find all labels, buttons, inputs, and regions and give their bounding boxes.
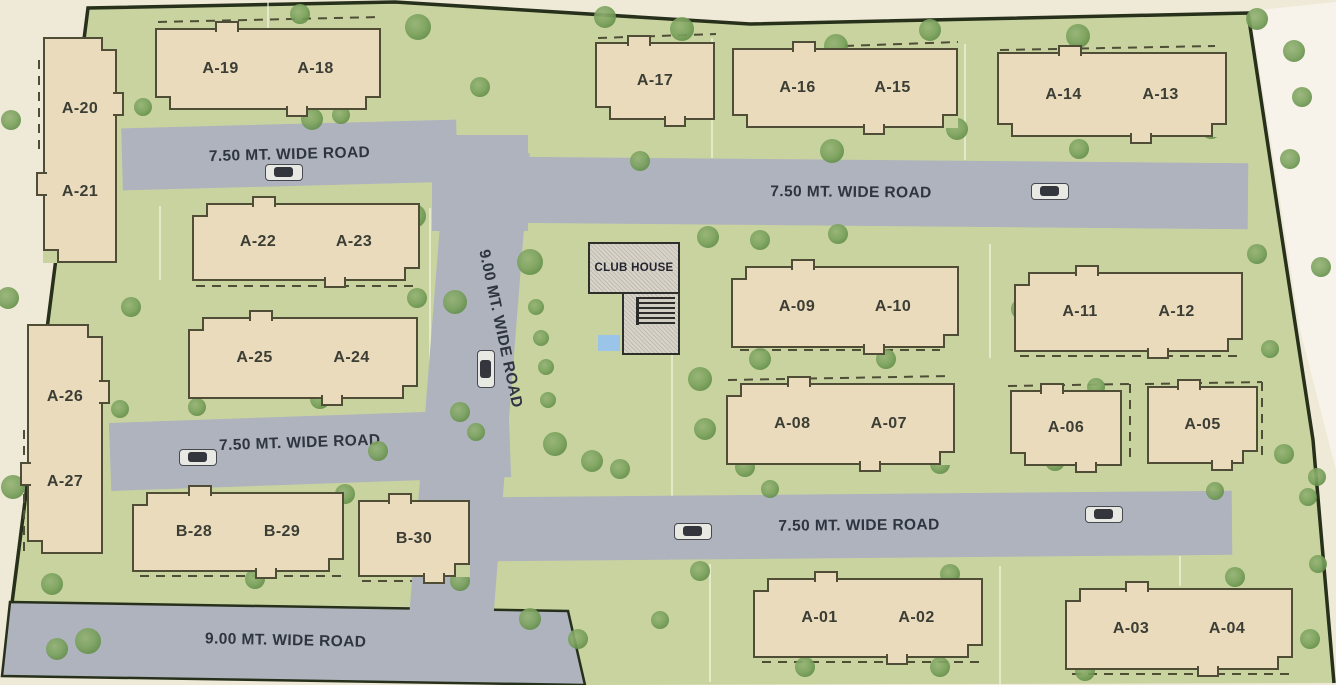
club-house-wing [622, 292, 680, 355]
building-a03-a04: A-03 A-04 [1065, 588, 1293, 670]
building-label: A-22 [240, 233, 276, 251]
building-a16-a15: A-16 A-15 [732, 48, 958, 128]
building-label: A-07 [871, 415, 907, 433]
building-label: A-13 [1142, 86, 1178, 104]
building-label: A-25 [236, 349, 272, 367]
building-a25-a24: A-25 A-24 [188, 317, 418, 399]
building-label: A-03 [1113, 620, 1149, 638]
pool-icon [598, 335, 620, 351]
car-icon [477, 350, 495, 388]
building-a01-a02: A-01 A-02 [753, 578, 983, 658]
building-label: A-20 [62, 100, 98, 118]
building-label: A-27 [47, 473, 83, 491]
building-a06: A-06 [1010, 390, 1122, 466]
car-icon [179, 449, 217, 466]
building-a14-a13: A-14 A-13 [997, 52, 1227, 137]
car-icon [674, 523, 712, 540]
building-label: B-29 [264, 523, 300, 541]
building-label: A-01 [801, 609, 837, 627]
building-a09-a10: A-09 A-10 [731, 266, 959, 348]
road-label: 7.50 MT. WIDE ROAD [778, 516, 940, 535]
car-icon [1031, 183, 1069, 200]
building-a20-a21: A-20 A-21 [43, 37, 117, 263]
road-label: 7.50 MT. WIDE ROAD [219, 432, 381, 456]
building-label: A-16 [779, 79, 815, 97]
building-label: A-14 [1045, 86, 1081, 104]
road-750-top-right: 7.50 MT. WIDE ROAD [500, 157, 1249, 230]
road-750-middle-left: 7.50 MT. WIDE ROAD [109, 409, 511, 491]
building-b30: B-30 [358, 500, 470, 577]
building-a26-a27: A-26 A-27 [27, 324, 103, 554]
road-900-bottom-label: 9.00 MT. WIDE ROAD [205, 630, 367, 651]
building-label: A-11 [1062, 303, 1097, 321]
building-label: B-30 [396, 530, 432, 548]
building-a11-a12: A-11 A-12 [1014, 272, 1243, 352]
building-a19-a18: A-19 A-18 [155, 28, 381, 110]
club-house-main: CLUB HOUSE [588, 242, 680, 294]
road-label: 7.50 MT. WIDE ROAD [209, 144, 371, 166]
building-label: A-12 [1158, 303, 1194, 321]
building-label: B-28 [176, 523, 212, 541]
car-icon [265, 164, 303, 181]
building-label: A-04 [1209, 620, 1245, 638]
building-label: A-26 [47, 388, 83, 406]
building-label: A-18 [297, 60, 333, 78]
building-a22-a23: A-22 A-23 [192, 203, 420, 281]
building-label: A-06 [1048, 419, 1084, 437]
building-label: A-15 [874, 79, 910, 97]
building-a05: A-05 [1147, 386, 1258, 464]
building-label: A-23 [336, 233, 372, 251]
road-750-bottom-right: 7.50 MT. WIDE ROAD [496, 491, 1233, 561]
club-house: CLUB HOUSE [588, 242, 680, 355]
site-layout-plan: 7.50 MT. WIDE ROAD 7.50 MT. WIDE ROAD 7.… [0, 0, 1336, 685]
building-label: A-10 [875, 298, 911, 316]
building-b28-b29: B-28 B-29 [132, 492, 344, 572]
building-label: A-21 [62, 183, 98, 201]
building-label: A-05 [1184, 416, 1220, 434]
building-a08-a07: A-08 A-07 [726, 383, 955, 465]
building-a17: A-17 [595, 42, 715, 120]
building-label: A-09 [779, 298, 815, 316]
building-label: A-02 [898, 609, 934, 627]
building-label: A-08 [774, 415, 810, 433]
building-label: A-19 [202, 60, 238, 78]
road-label: 7.50 MT. WIDE ROAD [770, 183, 932, 202]
car-icon [1085, 506, 1123, 523]
club-house-parking-stripes-icon [636, 297, 675, 325]
building-label: A-24 [333, 349, 369, 367]
building-label: A-17 [637, 72, 673, 90]
club-house-label: CLUB HOUSE [594, 262, 673, 274]
